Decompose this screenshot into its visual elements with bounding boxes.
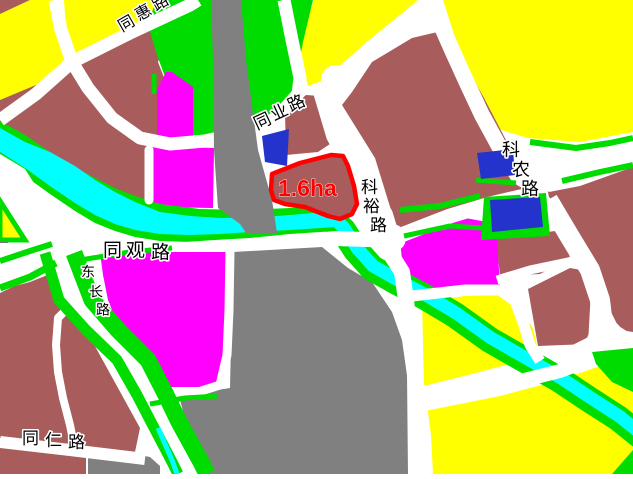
svg-text:1.6ha: 1.6ha	[278, 175, 337, 201]
